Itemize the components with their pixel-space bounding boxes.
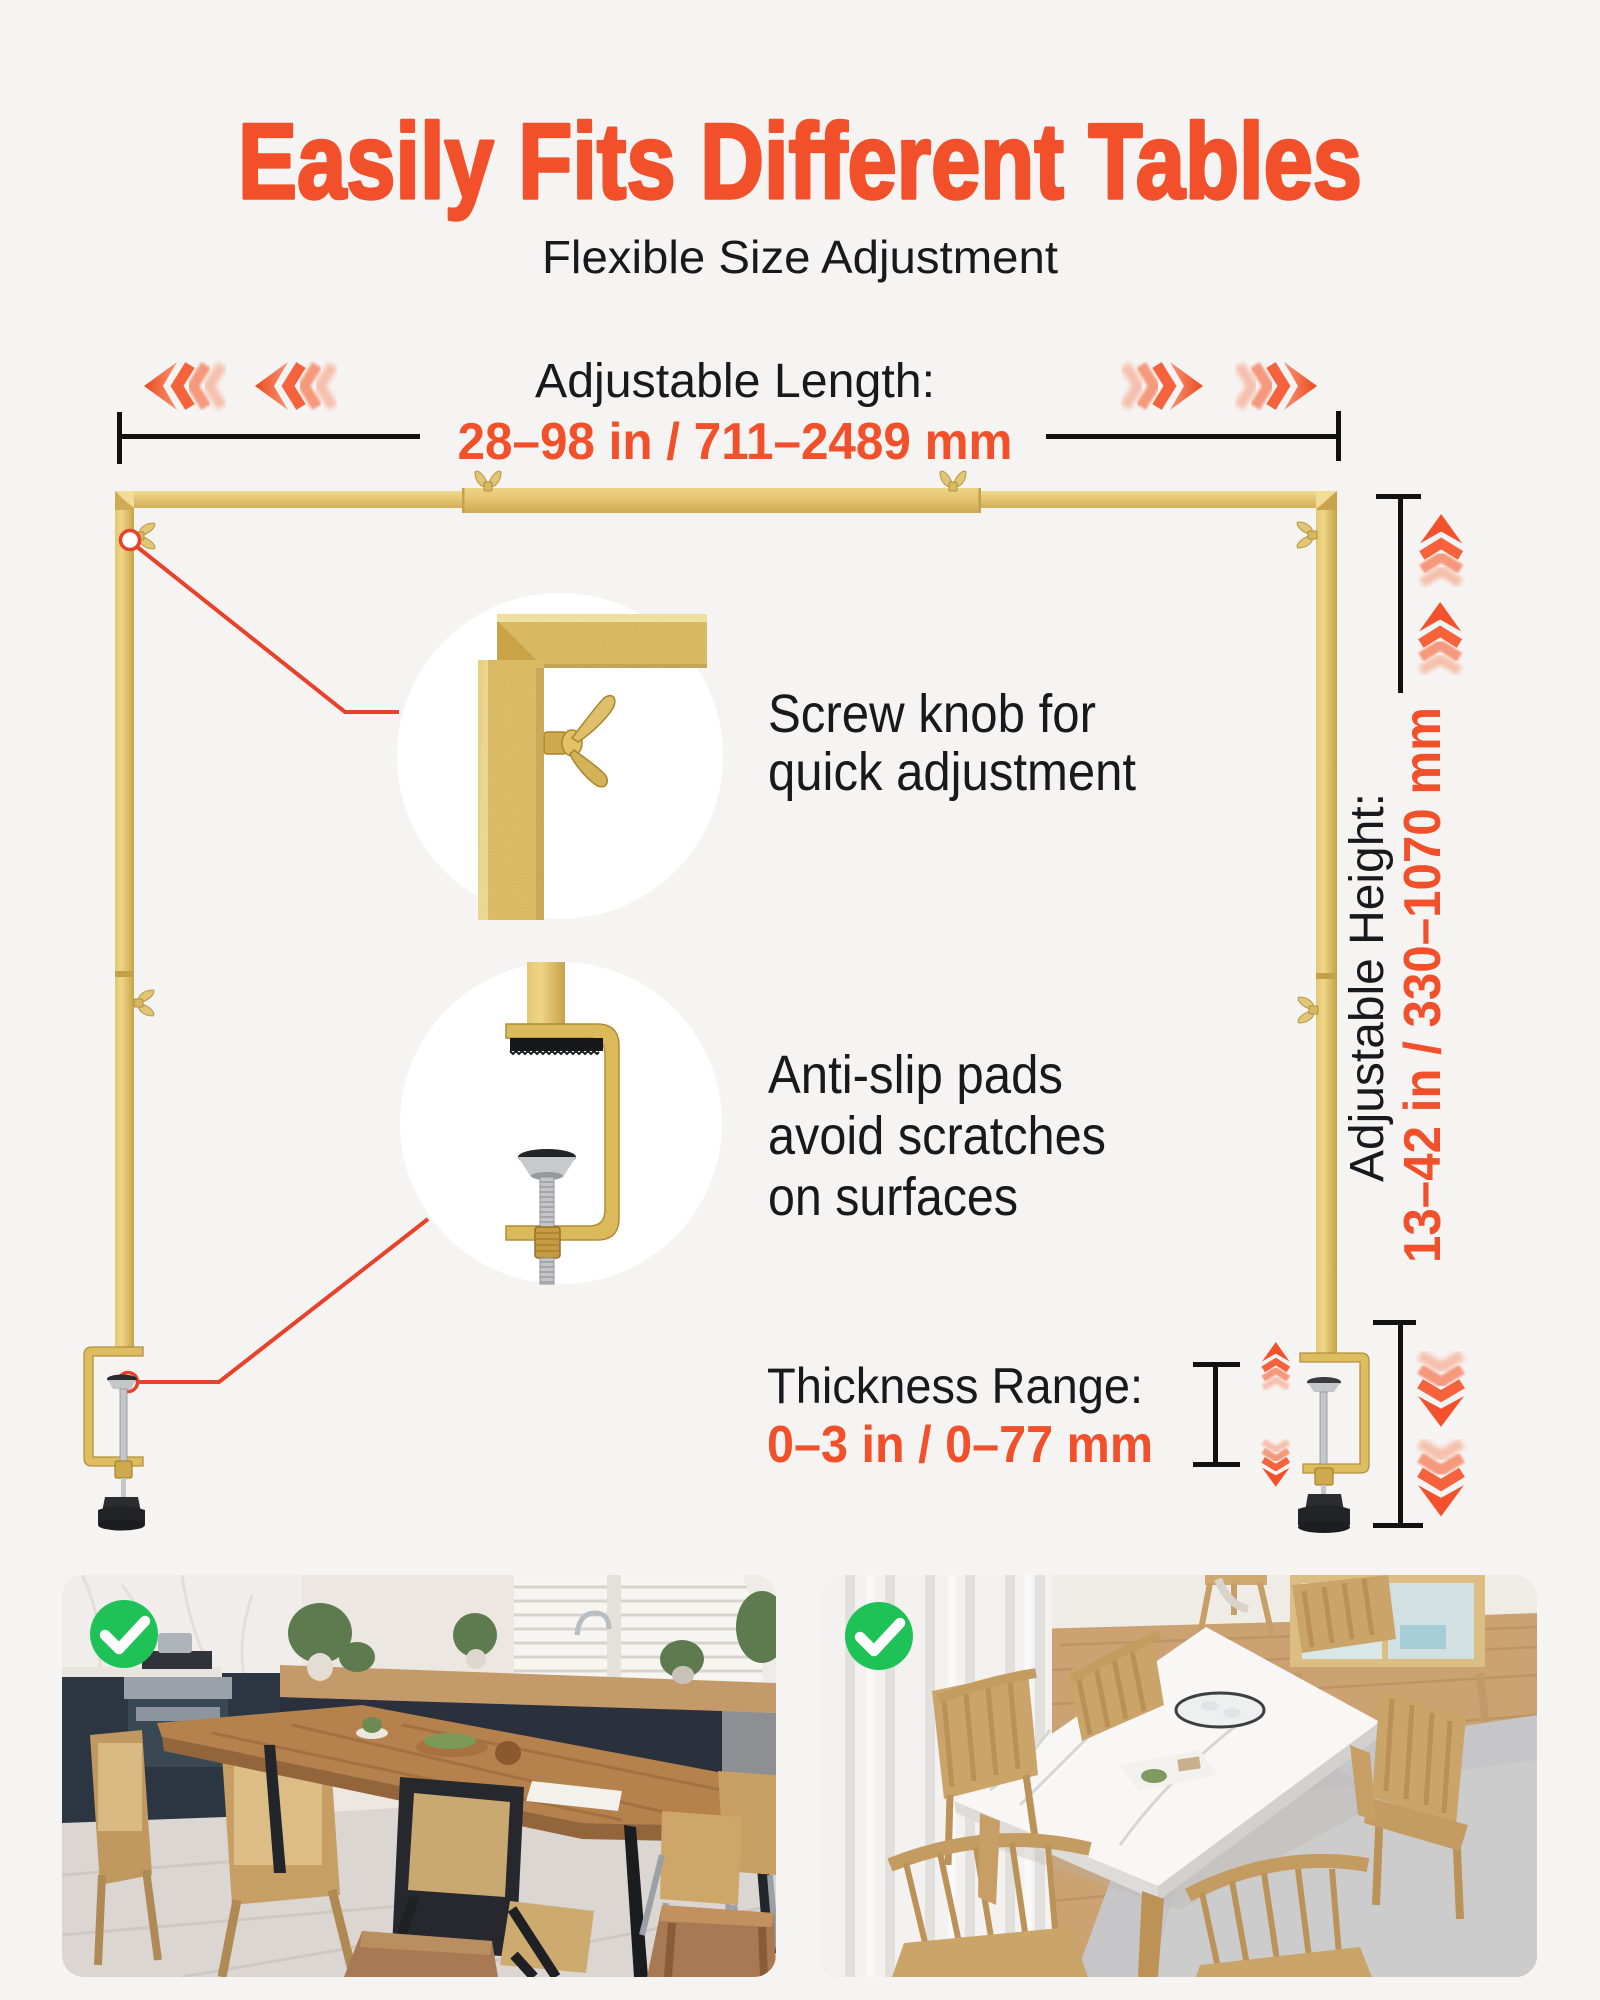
svg-text:Easily Fits Different Tables: Easily Fits Different Tables xyxy=(238,101,1362,221)
svg-text:Adjustable Length:: Adjustable Length: xyxy=(535,355,935,408)
svg-text:Thickness Range:: Thickness Range: xyxy=(767,1358,1143,1414)
svg-text:Flexible Size Adjustment: Flexible Size Adjustment xyxy=(542,231,1058,283)
svg-text:Adjustable Height:: Adjustable Height: xyxy=(1341,793,1394,1182)
svg-text:28–98 in / 711–2489 mm: 28–98 in / 711–2489 mm xyxy=(458,413,1013,471)
svg-text:0–3 in / 0–77 mm: 0–3 in / 0–77 mm xyxy=(767,1416,1153,1474)
svg-text:13–42 in / 330–1070 mm: 13–42 in / 330–1070 mm xyxy=(1394,707,1452,1263)
svg-text:Screw knob for quick adjustmen: Screw knob for quick adjustment xyxy=(768,684,1136,802)
